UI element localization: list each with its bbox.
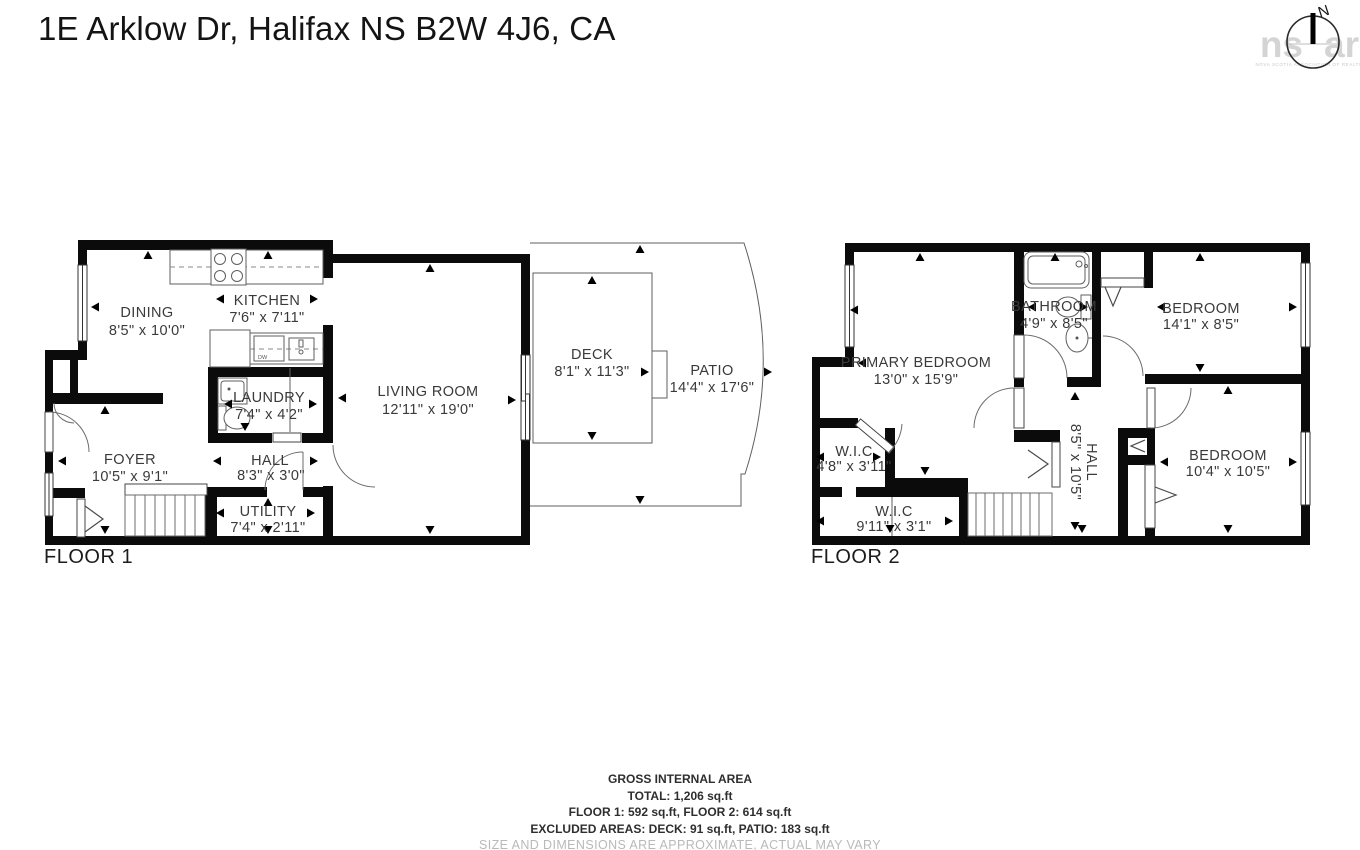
hall-living-door-arc [333, 445, 375, 487]
room-dims: 14'4" x 17'6" [670, 380, 755, 396]
floorplan-drawing: ns ar NOVA SCOTIA ASSOCIATION OF REALTOR… [0, 0, 1360, 850]
room-label: BEDROOM [1162, 301, 1240, 317]
bedroom1-door-arc [1103, 336, 1143, 376]
area-summary: GROSS INTERNAL AREA TOTAL: 1,206 sq.ft F… [0, 771, 1360, 850]
watermark-subtext: NOVA SCOTIA ASSOCIATION OF REALTORS [1256, 62, 1360, 67]
disclaimer: SIZE AND DIMENSIONS ARE APPROXIMATE, ACT… [0, 837, 1360, 850]
room-label: HALL [251, 453, 289, 469]
room-dims: 13'0" x 15'9" [874, 372, 959, 388]
floor2-label: FLOOR 2 [811, 546, 900, 568]
floor-areas: FLOOR 1: 592 sq.ft, FLOOR 2: 614 sq.ft [0, 804, 1360, 821]
floor1-plan: DW [44, 240, 772, 568]
room-dims: 12'11" x 19'0" [382, 402, 474, 418]
bifold-closet-icon [1105, 287, 1121, 306]
room-label: DINING [120, 305, 173, 321]
primary-bedroom-door [1014, 388, 1024, 428]
room-dims: 9'11" x 3'1" [856, 519, 931, 535]
foyer-closet-door [77, 499, 85, 537]
room-dims: 4'9" x 8'5" [1020, 316, 1088, 332]
stair-rail [1052, 442, 1060, 487]
floor1-stairs [125, 484, 207, 536]
floor2-stairs [968, 493, 1052, 536]
room-label: W.I.C [835, 444, 872, 460]
floor1-room-labels: DINING 8'5" x 10'0" KITCHEN 7'6" x 7'11"… [92, 293, 755, 536]
bedroom2-door [1147, 388, 1155, 428]
room-dims: 14'1" x 8'5" [1163, 317, 1239, 333]
floorplan-page: 1E Arklow Dr, Halifax NS B2W 4J6, CA ns … [0, 0, 1360, 850]
room-dims: 8'3" x 3'0" [237, 468, 305, 484]
room-label: BEDROOM [1189, 448, 1267, 464]
room-dims: 10'4" x 10'5" [1186, 464, 1271, 480]
compass-north-label: N [1316, 2, 1332, 22]
gross-area-heading: GROSS INTERNAL AREA [0, 771, 1360, 788]
room-dims: 7'4" x 2'11" [230, 520, 305, 536]
floor2-plan: PRIMARY BEDROOM 13'0" x 15'9" BATHROOM 4… [811, 243, 1310, 568]
bedroom2-closet-bifold-icon [1155, 487, 1176, 503]
room-label: KITCHEN [234, 293, 300, 309]
room-dims: 8'5" x 10'5" [1067, 424, 1083, 500]
room-label: BATHROOM [1011, 299, 1097, 315]
room-dims: 10'5" x 9'1" [92, 469, 168, 485]
room-label: UTILITY [240, 504, 297, 520]
linen-closet-bifold-icon [1028, 450, 1048, 478]
room-dims: 8'1" x 11'3" [554, 364, 629, 380]
room-label: PATIO [690, 363, 733, 379]
room-label: DECK [571, 347, 613, 363]
hall2-label-group: HALL 8'5" x 10'5" [1067, 424, 1099, 500]
dishwasher-label: DW [258, 355, 268, 361]
room-label: LAUNDRY [233, 390, 305, 406]
total-area: TOTAL: 1,206 sq.ft [0, 788, 1360, 805]
room-dims: 7'6" x 7'11" [229, 310, 304, 326]
bedroom1-closet-door [1101, 278, 1144, 287]
kitchen-sink-icon [289, 338, 314, 360]
hall-closet-bifold-icon [1131, 440, 1145, 452]
floor2-room-labels: PRIMARY BEDROOM 13'0" x 15'9" BATHROOM 4… [816, 299, 1270, 535]
room-label: HALL [1083, 443, 1099, 481]
floor1-label: FLOOR 1 [44, 546, 133, 568]
room-label: FOYER [104, 452, 156, 468]
room-dims: 4'8" x 3'11" [816, 459, 891, 475]
deck-step [652, 351, 667, 398]
brand-watermark: ns ar NOVA SCOTIA ASSOCIATION OF REALTOR… [1256, 24, 1360, 67]
bedroom2-closet-door [1145, 465, 1155, 528]
sliding-door [521, 355, 530, 440]
bifold-closet-icon [85, 506, 103, 532]
room-dims: 8'5" x 10'0" [109, 323, 185, 339]
bathroom-door [1014, 335, 1024, 378]
room-label: LIVING ROOM [377, 384, 478, 400]
foyer-closet-door-arc [54, 403, 74, 423]
entry-door [45, 412, 53, 452]
excluded-areas: EXCLUDED AREAS: DECK: 91 sq.ft, PATIO: 1… [0, 821, 1360, 838]
room-label: W.I.C [875, 504, 912, 520]
room-dims: 7'4" x 4'2" [235, 407, 303, 423]
room-label: PRIMARY BEDROOM [841, 355, 992, 371]
laundry-pocket-door [273, 433, 301, 442]
